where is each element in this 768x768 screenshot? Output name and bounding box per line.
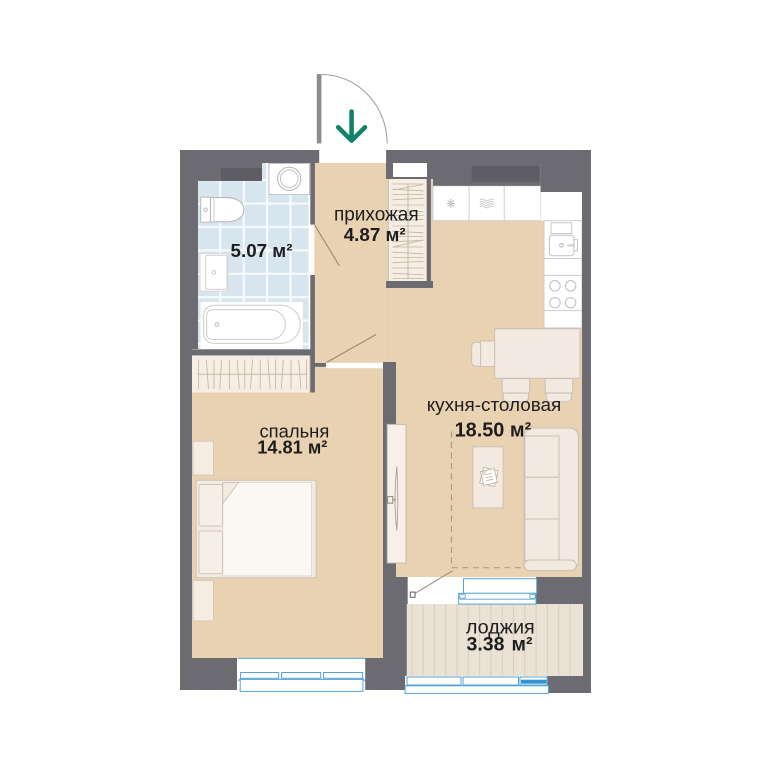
- svg-text:прихожая: прихожая: [334, 204, 419, 225]
- svg-text:14.81 м²: 14.81 м²: [257, 438, 327, 458]
- svg-text:кухня-столовая: кухня-столовая: [427, 395, 562, 416]
- svg-text:18.50 м²: 18.50 м²: [455, 420, 532, 442]
- svg-text:5.07 м²: 5.07 м²: [231, 240, 293, 261]
- svg-text:4.87 м²: 4.87 м²: [344, 224, 406, 245]
- svg-text:3.38 м²: 3.38 м²: [467, 634, 533, 656]
